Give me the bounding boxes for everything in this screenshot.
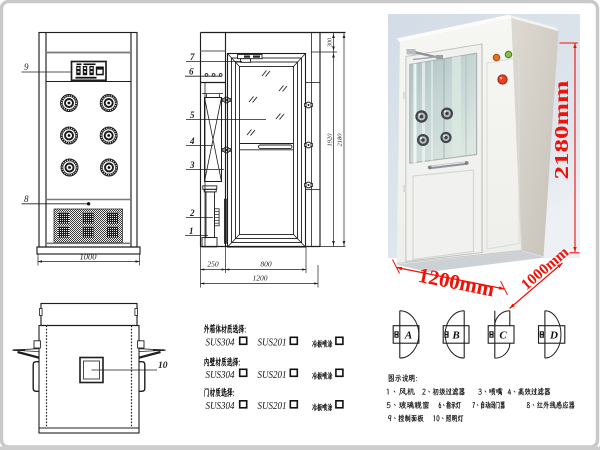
svg-text:SUS304: SUS304	[206, 338, 236, 349]
svg-text:SUS201: SUS201	[258, 338, 287, 349]
svg-text:SUS201: SUS201	[258, 401, 287, 412]
svg-text:C: C	[499, 330, 507, 342]
svg-text:6: 6	[189, 67, 194, 77]
svg-text:5: 5	[190, 110, 195, 120]
svg-text:2180: 2180	[337, 133, 344, 147]
svg-text:2: 2	[189, 208, 195, 218]
svg-text:7: 7	[190, 52, 195, 62]
svg-text:1: 1	[189, 226, 194, 236]
svg-text:1200: 1200	[253, 274, 268, 283]
svg-text:1000: 1000	[80, 252, 98, 262]
svg-text:9: 9	[24, 62, 29, 72]
svg-text:B: B	[451, 330, 459, 342]
svg-text:10: 10	[158, 361, 168, 371]
svg-text:D: D	[549, 330, 558, 342]
svg-text:SUS304: SUS304	[206, 370, 236, 381]
svg-text:250: 250	[207, 260, 219, 269]
svg-text:3: 3	[189, 160, 195, 170]
svg-text:8: 8	[24, 194, 29, 204]
svg-text:SUS304: SUS304	[206, 401, 236, 412]
svg-text:2180mm: 2180mm	[551, 80, 573, 179]
svg-text:1920: 1920	[327, 133, 334, 147]
svg-text:4: 4	[189, 136, 195, 146]
svg-text:SUS201: SUS201	[258, 370, 287, 381]
svg-text:800: 800	[260, 260, 272, 269]
svg-text:A: A	[404, 330, 412, 342]
svg-text:300: 300	[328, 38, 334, 48]
